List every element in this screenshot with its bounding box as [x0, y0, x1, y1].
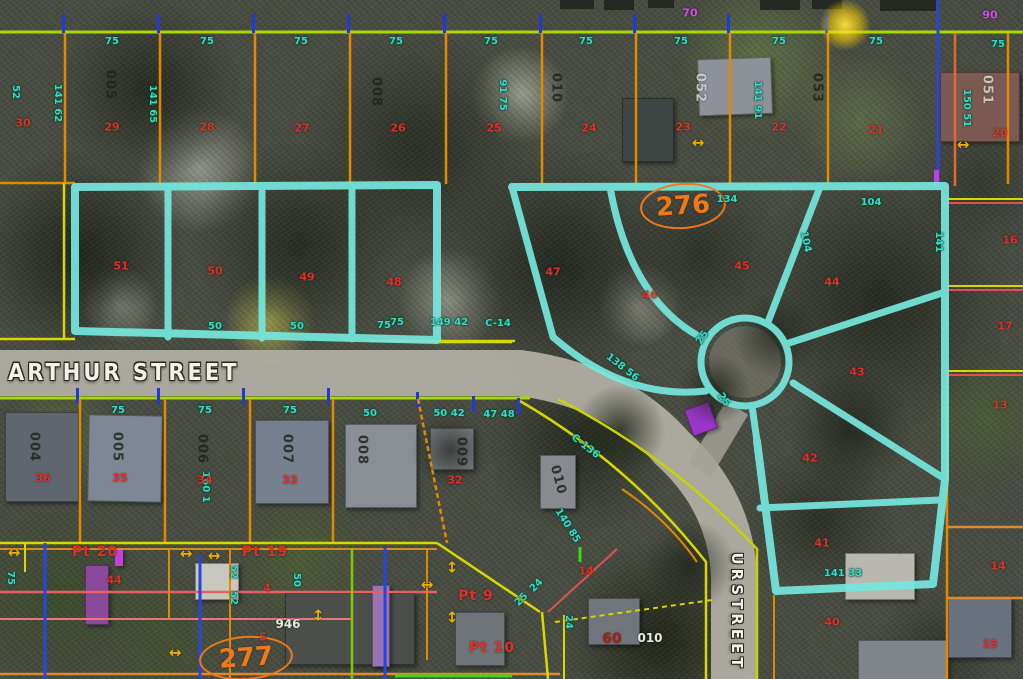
map-viewport[interactable]: 276 277 ARTHUR STREET URSTREET 757575757… [0, 0, 1023, 679]
highlighted-parcel-block-west[interactable] [75, 185, 437, 340]
vertical-street-label: URSTREET [728, 552, 746, 671]
highlighted-parcel-block-east[interactable] [512, 186, 945, 591]
culdesac-lot-frontage[interactable] [701, 318, 789, 406]
survey-marker-276-text: 276 [655, 189, 711, 223]
survey-marker-277-text: 277 [218, 641, 274, 675]
highlight-layer [0, 0, 1023, 679]
arthur-street-label: ARTHUR STREET [8, 359, 240, 386]
